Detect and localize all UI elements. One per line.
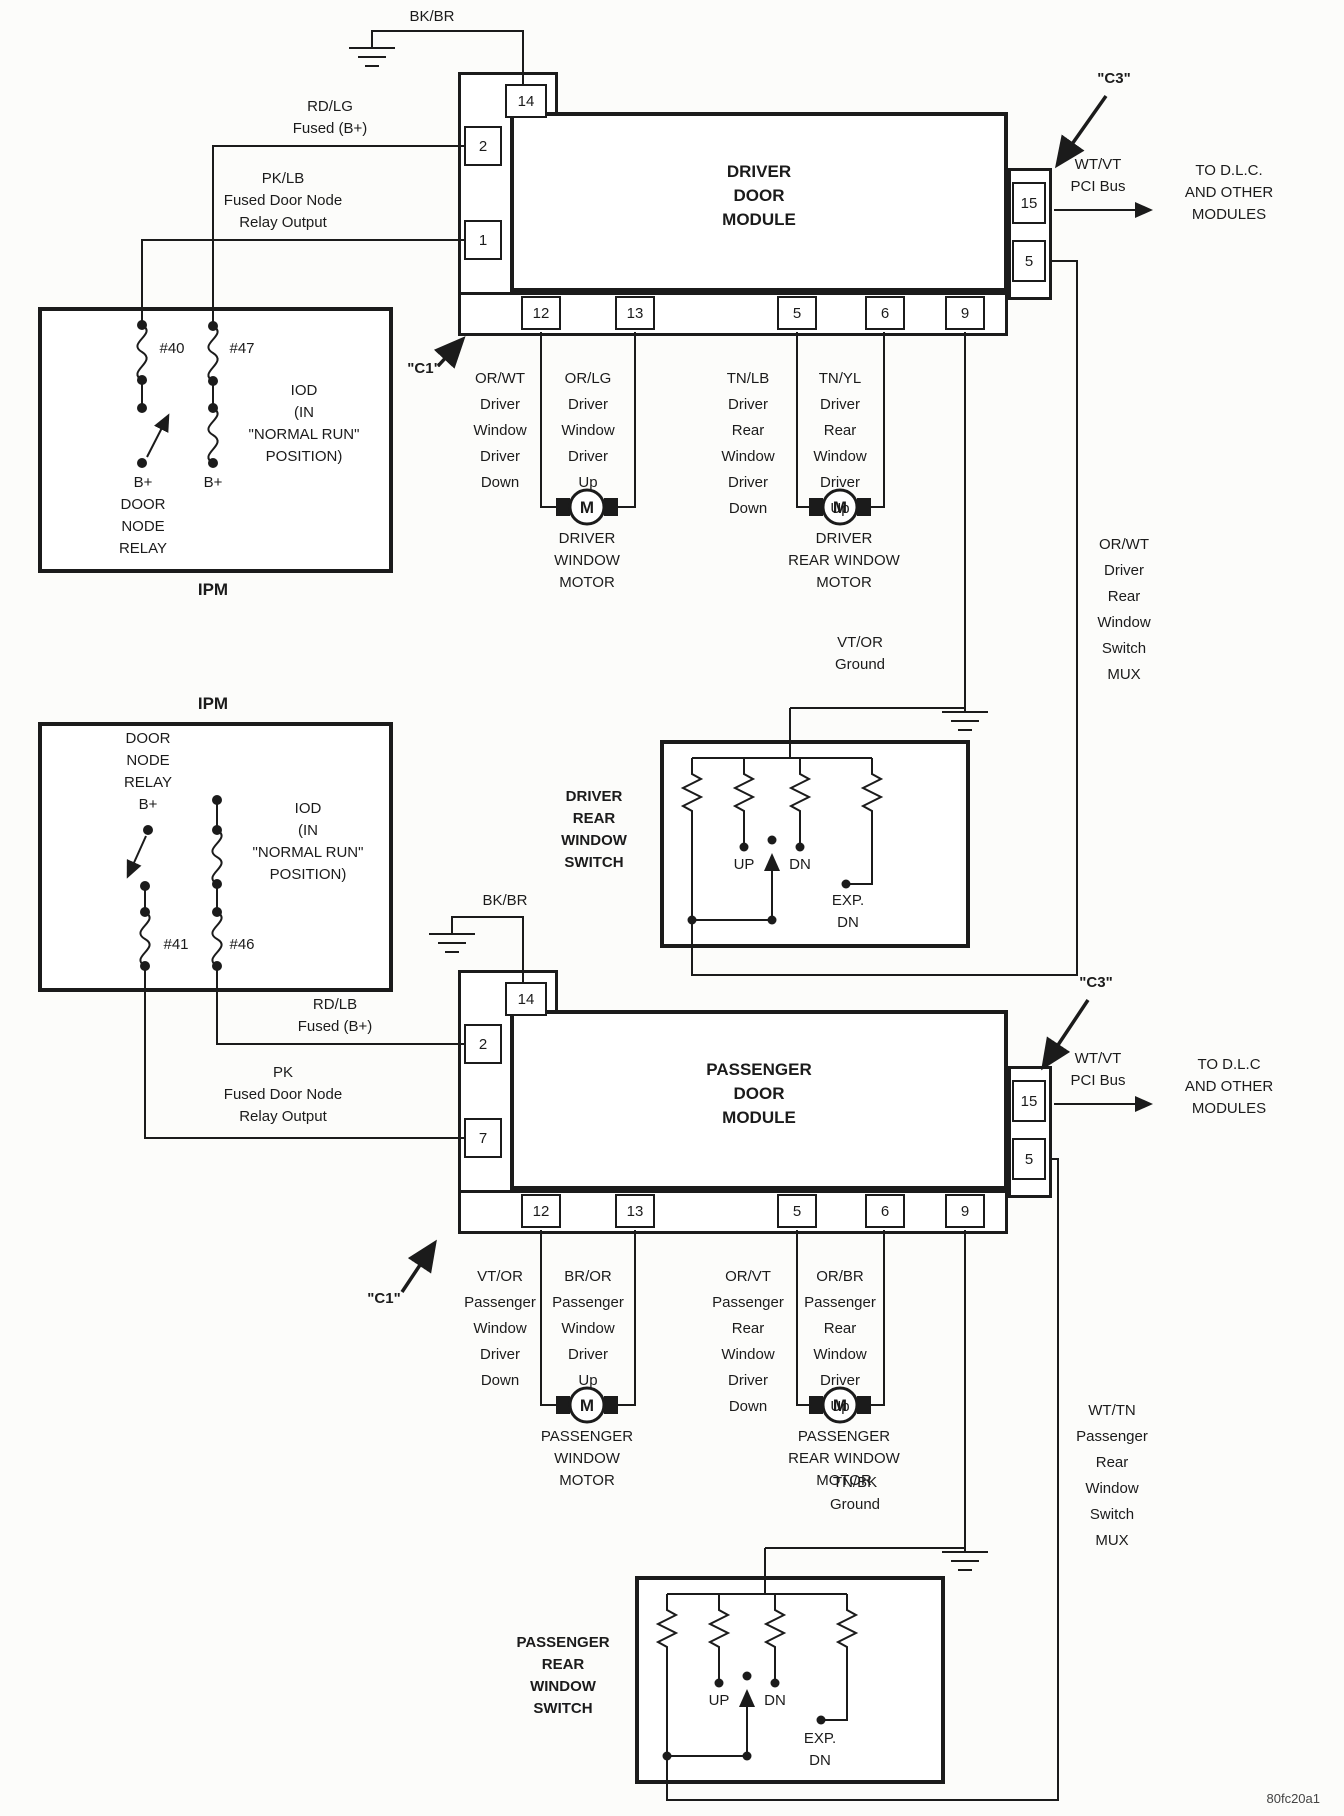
svg-text:M: M (580, 1396, 594, 1415)
passenger-pin-9: 9 (945, 1194, 985, 1228)
driver-mux-label: OR/WT Driver Rear Window Switch MUX (1078, 532, 1170, 688)
resistor-icon (766, 1606, 784, 1662)
driver-pin-2: 2 (464, 126, 502, 166)
driver-wire-window-up-label: OR/LG Driver Window Driver Up (540, 366, 636, 496)
driver-pin-12: 12 (521, 296, 561, 330)
driver-pci-label: WT/VT PCI Bus (1054, 154, 1142, 198)
passenger-ground-feed-label: BK/BR (455, 890, 555, 912)
driver-pin-1: 1 (464, 220, 502, 260)
driver-module-title: DRIVER DOOR MODULE (609, 160, 909, 232)
c1-pointer-passenger (402, 1244, 434, 1292)
driver-wire-window-down-label: OR/WT Driver Window Driver Down (452, 366, 548, 496)
driver-pin-13: 13 (615, 296, 655, 330)
passenger-pci-dest-label: TO D.L.C AND OTHER MODULES (1154, 1054, 1304, 1120)
passenger-switch-label: PASSENGER REAR WINDOW SWITCH (499, 1632, 627, 1720)
passenger-switch-dn-label: DN (751, 1690, 799, 1712)
passenger-relay-feed-label: PK Fused Door Node Relay Output (168, 1062, 398, 1128)
passenger-module-title: PASSENGER DOOR MODULE (609, 1058, 909, 1130)
resistor-icon (863, 770, 881, 826)
passenger-wire-rear-down-label: OR/VT Passenger Rear Window Driver Down (700, 1264, 796, 1420)
ipm-top-title: IPM (163, 578, 263, 602)
passenger-switch-exp-label: EXP. DN (782, 1728, 858, 1772)
ipm-bottom-relay-label: DOOR NODE RELAY B+ (100, 728, 196, 816)
ipm-bottom-fuse-41-label: #41 (148, 934, 204, 956)
driver-pin-14: 14 (505, 84, 547, 118)
passenger-pin-2: 2 (464, 1024, 502, 1064)
ipm-top-bplus-right-label: B+ (185, 472, 241, 494)
resistor-icon (735, 770, 753, 826)
driver-switch-dn-label: DN (776, 854, 824, 876)
ground-icon (942, 1552, 988, 1570)
resistor-icon (791, 770, 809, 826)
passenger-ground-wire-label: TN/BK Ground (800, 1472, 910, 1516)
driver-feed-b-label: RD/LG Fused (B+) (230, 96, 430, 140)
relay-arm-arrow (128, 836, 146, 876)
driver-c1-label: "C1" (396, 358, 452, 380)
ipm-top-iod-label: IOD (IN "NORMAL RUN" POSITION) (218, 380, 390, 468)
driver-pin-5: 5 (777, 296, 817, 330)
ipm-bottom-iod-label: IOD (IN "NORMAL RUN" POSITION) (222, 798, 394, 886)
ipm-top-fuse-47-label: #47 (214, 338, 270, 360)
passenger-feed-b-label: RD/LB Fused (B+) (240, 994, 430, 1038)
passenger-mux-label: WT/TN Passenger Rear Window Switch MUX (1066, 1398, 1158, 1554)
passenger-window-motor-label: PASSENGER WINDOW MOTOR (507, 1426, 667, 1492)
passenger-switch-up-label: UP (695, 1690, 743, 1712)
driver-pci-dest-label: TO D.L.C. AND OTHER MODULES (1154, 160, 1304, 226)
ground-icon (942, 712, 988, 730)
driver-switch-label: DRIVER REAR WINDOW SWITCH (532, 786, 656, 874)
passenger-pin-14: 14 (505, 982, 547, 1016)
wire-bkbr-passenger (452, 917, 523, 984)
passenger-pin-12: 12 (521, 1194, 561, 1228)
passenger-pin-6: 6 (865, 1194, 905, 1228)
ipm-top-relay-label: B+ DOOR NODE RELAY (95, 472, 191, 560)
resistor-icon (710, 1606, 728, 1662)
driver-c3-label: "C3" (1078, 68, 1150, 90)
passenger-wire-window-up-label: BR/OR Passenger Window Driver Up (540, 1264, 636, 1394)
iod-switch-icon (212, 830, 221, 884)
ground-icon (349, 48, 395, 66)
relay-arm-arrow (147, 416, 168, 457)
driver-ground-wire-label: VT/OR Ground (806, 632, 914, 676)
passenger-wire-rear-up-label: OR/BR Passenger Rear Window Driver Up (792, 1264, 888, 1420)
wiring-diagram: M M M M 14 2 1 12 13 5 6 9 15 5 14 2 7 1… (0, 0, 1344, 1816)
passenger-c3-label: "C3" (1060, 972, 1132, 994)
figure-code: 80fc20a1 (1210, 1788, 1320, 1810)
driver-wire-rear-up-label: TN/YL Driver Rear Window Driver Up (792, 366, 888, 522)
resistor-icon (683, 770, 701, 826)
driver-relay-feed-label: PK/LB Fused Door Node Relay Output (168, 168, 398, 234)
passenger-pin-5-c3: 5 (1012, 1138, 1046, 1180)
wire-pklb (142, 240, 464, 326)
passenger-wire-window-down-label: VT/OR Passenger Window Driver Down (452, 1264, 548, 1394)
wire-bkbr-driver (372, 31, 523, 86)
driver-wire-rear-down-label: TN/LB Driver Rear Window Driver Down (700, 366, 796, 522)
driver-pin-6: 6 (865, 296, 905, 330)
driver-switch-up-label: UP (720, 854, 768, 876)
passenger-pin-15: 15 (1012, 1080, 1046, 1122)
driver-pin-15: 15 (1012, 182, 1046, 224)
driver-pin-5-c3: 5 (1012, 240, 1046, 282)
passenger-pci-label: WT/VT PCI Bus (1054, 1048, 1142, 1092)
driver-switch-exp-label: EXP. DN (810, 890, 886, 934)
resistor-icon (838, 1606, 856, 1662)
ipm-bottom-title: IPM (163, 692, 263, 716)
iod-switch-icon (208, 408, 217, 463)
passenger-pin-7: 7 (464, 1118, 502, 1158)
passenger-pin-13: 13 (615, 1194, 655, 1228)
resistor-icon (658, 1606, 676, 1662)
passenger-pin-5: 5 (777, 1194, 817, 1228)
driver-rear-window-motor-label: DRIVER REAR WINDOW MOTOR (764, 528, 924, 594)
driver-pin-9: 9 (945, 296, 985, 330)
ground-icon (429, 934, 475, 952)
passenger-c1-label: "C1" (356, 1288, 412, 1310)
driver-ground-feed-label: BK/BR (382, 6, 482, 28)
svg-text:M: M (580, 498, 594, 517)
ipm-bottom-fuse-46-label: #46 (214, 934, 270, 956)
ipm-top-fuse-40-label: #40 (144, 338, 200, 360)
driver-window-motor-label: DRIVER WINDOW MOTOR (517, 528, 657, 594)
